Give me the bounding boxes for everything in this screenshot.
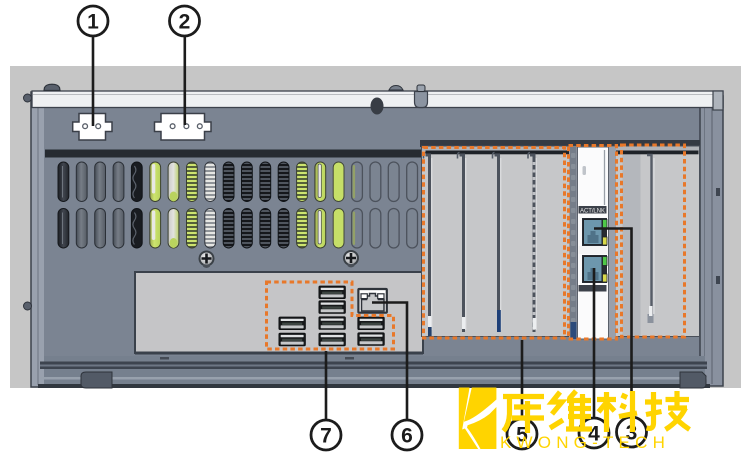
svg-text:6: 6 (401, 425, 413, 448)
svg-text:ACT/LNK: ACT/LNK (580, 208, 605, 214)
svg-text:7: 7 (320, 425, 332, 448)
svg-text:KWONG-TECH: KWONG-TECH (500, 433, 670, 452)
svg-text:1: 1 (87, 11, 99, 34)
svg-text:2: 2 (179, 11, 191, 34)
